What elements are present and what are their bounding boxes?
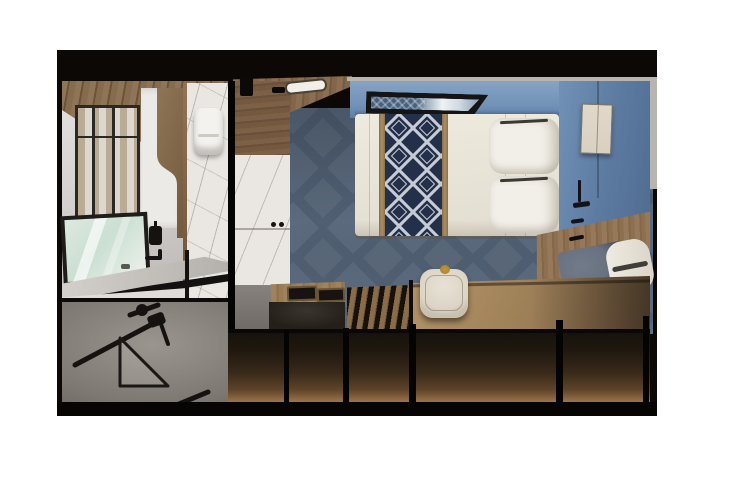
cut-divider	[343, 328, 349, 408]
cut-divider	[556, 320, 563, 408]
duvet-seam	[369, 114, 370, 236]
armchair	[420, 269, 468, 318]
soap-dispenser	[149, 226, 162, 245]
shower-niche-edge	[185, 250, 189, 302]
drawer-handle	[317, 288, 345, 303]
soap-pump	[154, 221, 157, 227]
grab-bar-support	[161, 324, 168, 344]
slatted-rack	[347, 285, 409, 334]
grey-cut-edge-top	[347, 77, 650, 81]
cut-divider	[409, 324, 416, 408]
wardrobe-marble-doors	[235, 155, 290, 285]
bolster-seam	[612, 261, 648, 273]
wardrobe-knob	[279, 222, 284, 227]
window-glass	[371, 96, 479, 111]
grab-bars	[62, 302, 228, 404]
runner-trim-right	[442, 114, 448, 236]
panel-seam	[596, 105, 599, 153]
wardrobe-door-seam	[235, 228, 290, 230]
partition-rail	[78, 136, 137, 138]
front-cabinet-faces	[228, 332, 650, 406]
wall-handle-vertical	[578, 180, 581, 202]
base-cut-band	[57, 402, 657, 416]
wardrobe-knob	[271, 222, 276, 227]
corner-shower-shelf	[120, 338, 168, 386]
stateroom-render	[57, 50, 657, 416]
partition-mullion	[112, 108, 115, 225]
pillow-bottom	[489, 176, 559, 233]
toilet	[194, 108, 223, 155]
pillow-top	[489, 118, 559, 174]
counter-accessory	[121, 264, 130, 269]
beige-wall-panel	[580, 103, 613, 154]
front-band-top-line	[228, 329, 650, 333]
window-reflection	[371, 96, 425, 110]
cut-divider	[284, 330, 289, 408]
pillow-piping	[500, 119, 548, 125]
grey-cut-edge-right	[650, 77, 657, 189]
gold-knob	[440, 265, 450, 274]
drawer-handle	[287, 285, 318, 301]
cut-divider	[643, 316, 649, 408]
partition-mullion	[92, 108, 95, 225]
vent-panel-small	[272, 87, 285, 93]
picture-window	[366, 91, 489, 116]
shower-glass-partition	[75, 105, 140, 228]
faucet-spout	[158, 249, 162, 259]
bed-runner	[385, 114, 442, 236]
vent-panel	[240, 76, 253, 96]
fold-down-grab-bar	[75, 320, 160, 365]
page-canvas	[0, 0, 737, 491]
pillow-piping	[500, 177, 548, 183]
desk-shadow	[530, 276, 650, 336]
armchair-seam	[425, 275, 463, 311]
hand-shower-head	[136, 304, 148, 316]
toilet-seam	[198, 134, 219, 137]
